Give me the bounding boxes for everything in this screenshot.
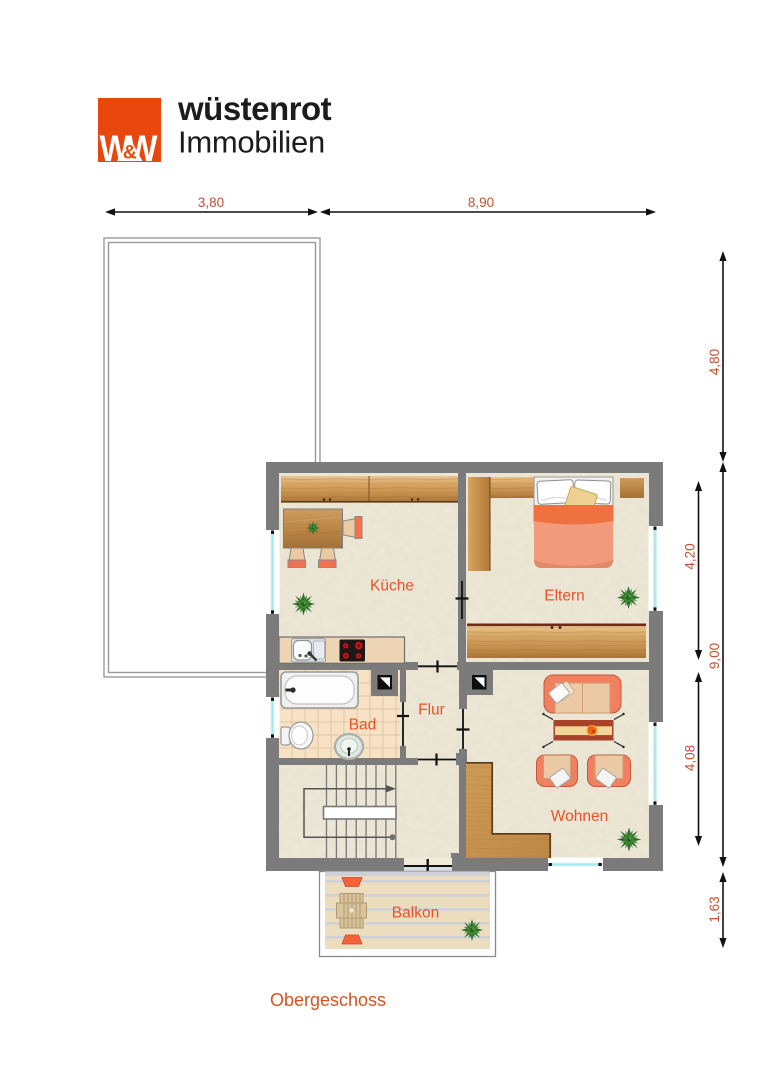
svg-text:Flur: Flur (418, 702, 445, 719)
svg-text:Eltern: Eltern (544, 588, 585, 605)
svg-text:4,08: 4,08 (683, 745, 698, 771)
svg-text:Balkon: Balkon (392, 905, 439, 922)
svg-text:Küche: Küche (370, 578, 414, 595)
svg-text:wüstenrot: wüstenrot (177, 90, 332, 127)
svg-text:Immobilien: Immobilien (178, 125, 325, 160)
svg-text:4,80: 4,80 (707, 349, 722, 375)
svg-text:Bad: Bad (349, 717, 377, 734)
svg-text:&: & (123, 142, 137, 164)
svg-text:4,20: 4,20 (683, 543, 698, 569)
svg-text:3,80: 3,80 (198, 195, 224, 210)
svg-text:Wohnen: Wohnen (551, 808, 608, 825)
svg-text:8,90: 8,90 (468, 195, 494, 210)
svg-text:Obergeschoss: Obergeschoss (270, 990, 386, 1010)
svg-text:9,00: 9,00 (707, 643, 722, 669)
svg-text:1,63: 1,63 (707, 896, 722, 922)
